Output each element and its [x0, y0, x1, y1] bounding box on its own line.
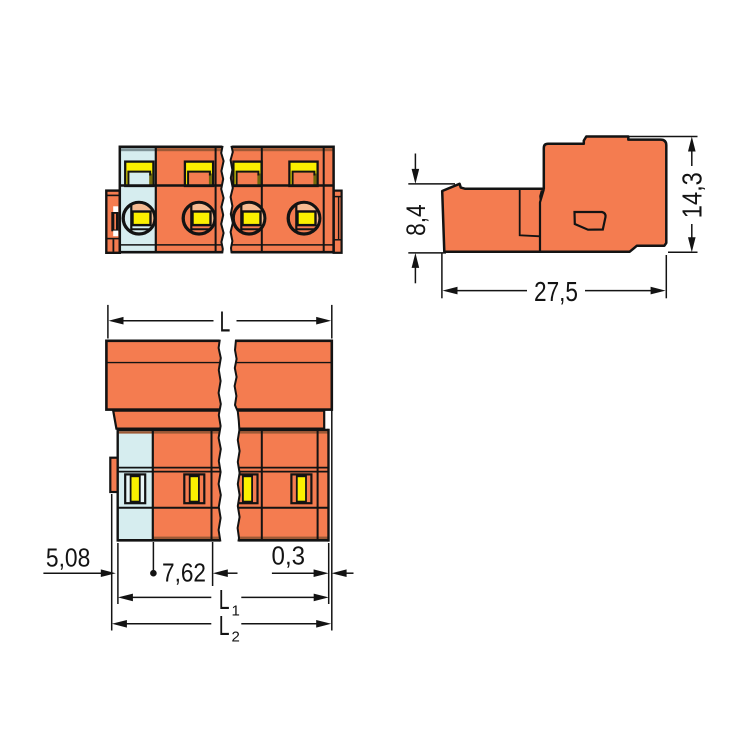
svg-text:L: L	[219, 610, 230, 641]
svg-text:1: 1	[232, 603, 240, 620]
svg-text:0,3: 0,3	[272, 542, 306, 570]
svg-text:27,5: 27,5	[534, 276, 578, 307]
svg-text:7,62: 7,62	[162, 558, 206, 588]
svg-text:2: 2	[232, 629, 240, 646]
svg-text:5,08: 5,08	[46, 543, 90, 573]
svg-text:14,3: 14,3	[676, 172, 707, 218]
svg-text:8,4: 8,4	[401, 204, 431, 236]
svg-text:L: L	[220, 307, 231, 339]
